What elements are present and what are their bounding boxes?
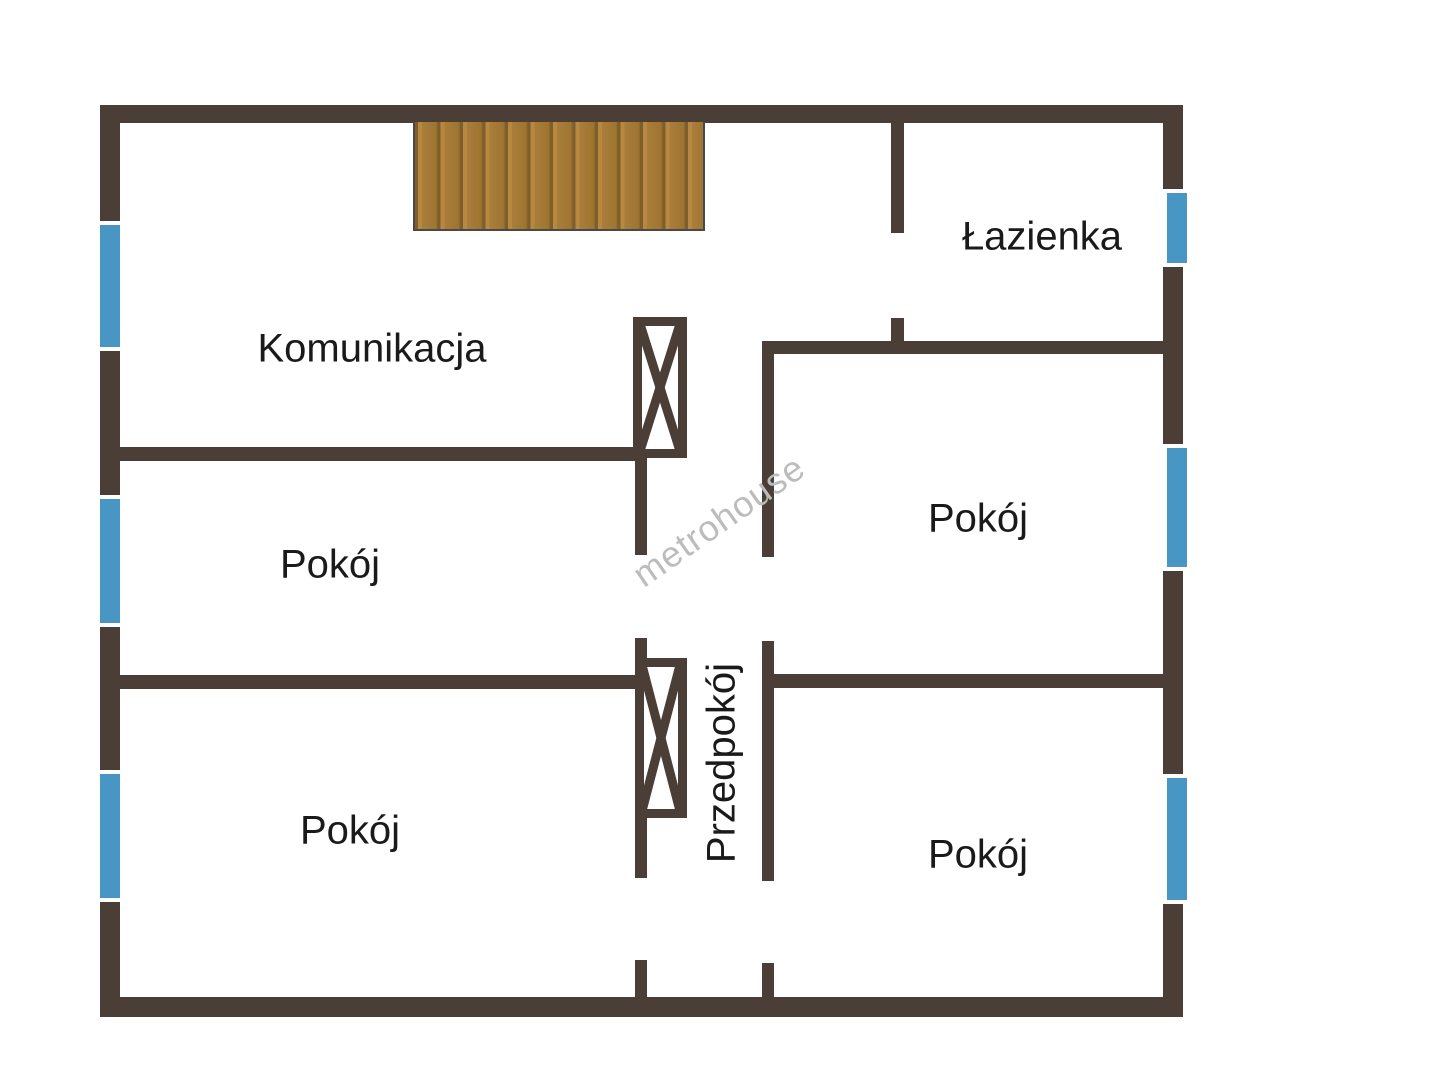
outer-wall-top	[100, 105, 1183, 123]
room-label-lazienka: Łazienka	[962, 215, 1122, 260]
outer-wall-left-segment	[100, 627, 120, 770]
room-divider-wall	[767, 674, 1165, 688]
bathroom-left-wall-stub	[891, 318, 904, 343]
room-label-przedpokoj: Przedpokój	[700, 663, 745, 863]
room-divider-wall	[115, 675, 640, 689]
watermark: metrohouse	[625, 446, 813, 595]
window	[1167, 193, 1187, 263]
outer-wall-left-segment	[100, 105, 120, 221]
window	[100, 499, 120, 623]
outer-wall-left-segment	[100, 351, 120, 495]
hallway-right-wall	[762, 341, 774, 557]
chimney-flue-icon	[633, 317, 687, 458]
outer-wall-left-segment	[100, 902, 120, 1017]
window	[1167, 778, 1187, 900]
outer-wall-right-segment	[1163, 571, 1183, 774]
outer-wall-bottom	[100, 997, 1183, 1017]
room-label-pokoj-middle-left: Pokój	[280, 543, 380, 588]
hallway-left-wall	[635, 818, 647, 878]
hallway-right-wall	[762, 963, 774, 997]
chimney-flue-icon	[635, 658, 687, 818]
room-label-pokoj-top-right: Pokój	[928, 497, 1028, 542]
window	[1167, 448, 1187, 567]
bathroom-bottom-wall	[762, 341, 1165, 354]
outer-wall-right-segment	[1163, 904, 1183, 1017]
hallway-left-wall	[635, 638, 647, 658]
outer-wall-right-segment	[1163, 267, 1183, 444]
stairs	[413, 122, 705, 231]
bathroom-left-wall	[891, 123, 904, 233]
hallway-left-wall	[635, 960, 647, 997]
window	[100, 774, 120, 898]
room-divider-wall	[115, 447, 640, 461]
floor-plan: Komunikacja Łazienka Pokój Pokój Pokój P…	[0, 0, 1440, 1080]
room-label-pokoj-bottom-right: Pokój	[928, 833, 1028, 878]
outer-wall-right-segment	[1163, 105, 1183, 189]
room-label-pokoj-bottom-left: Pokój	[300, 809, 400, 854]
hallway-left-wall	[635, 450, 647, 555]
window	[100, 225, 120, 347]
room-label-komunikacja: Komunikacja	[257, 327, 486, 372]
